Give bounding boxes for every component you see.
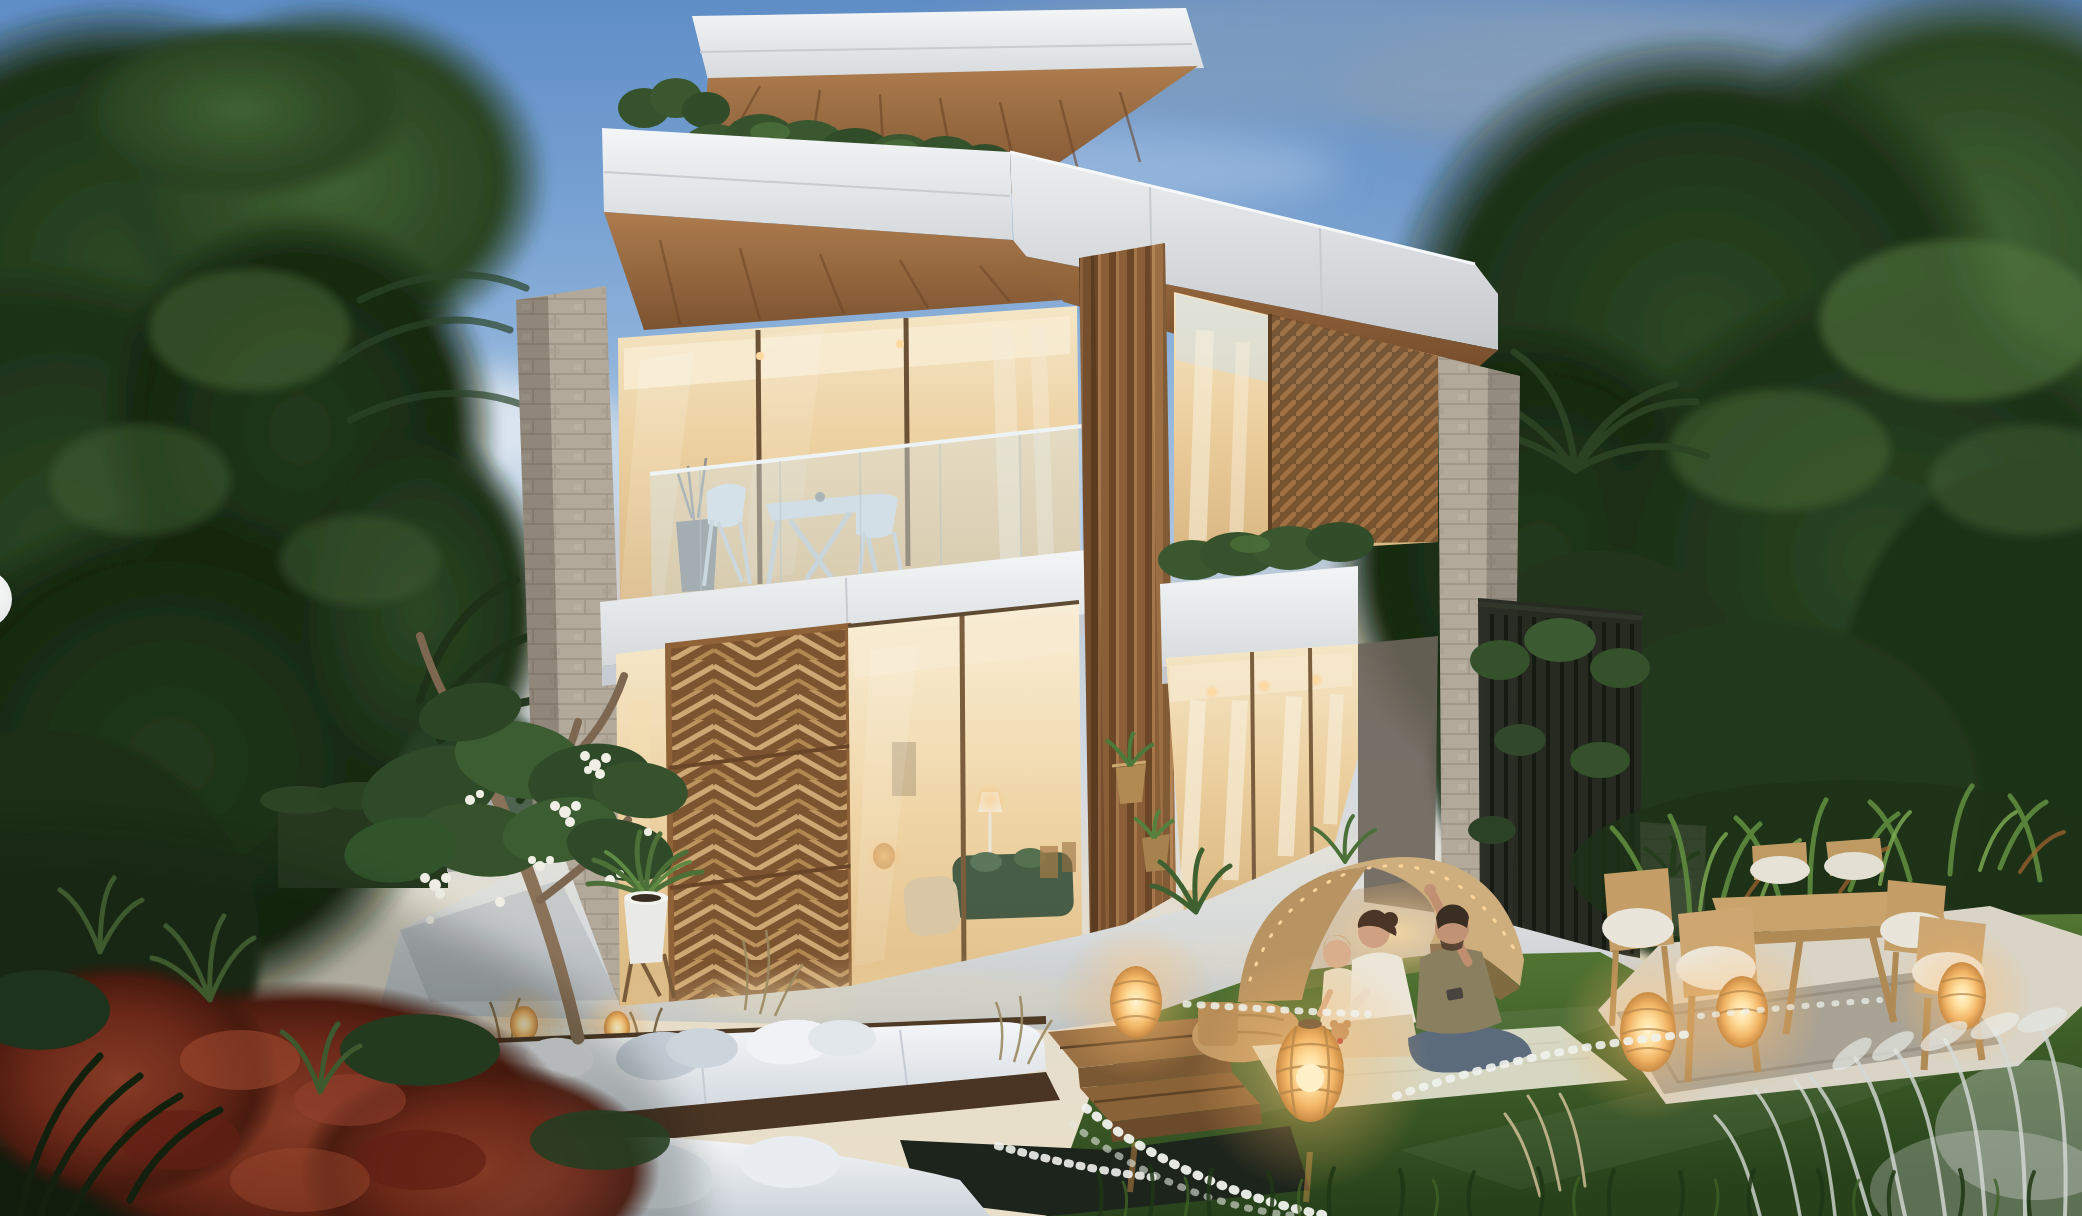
villa-dusk-render: Dusk exterior rendering of a modern two-… bbox=[0, 0, 2082, 1216]
pillow bbox=[740, 1136, 840, 1188]
pillow bbox=[808, 1020, 876, 1056]
chevron-timber-screen: Chevron timber privacy screen bbox=[668, 626, 852, 1006]
scene-canvas: Dusk exterior rendering of a modern two-… bbox=[0, 0, 2082, 1216]
living-room-glazing: Warm-lit living room behind glass slidin… bbox=[848, 602, 1082, 990]
rattan-lantern bbox=[1892, 926, 2032, 1066]
armchair bbox=[902, 874, 962, 937]
rattan-lantern bbox=[1190, 952, 1430, 1192]
rattan-lantern bbox=[1056, 922, 1216, 1082]
pillow bbox=[666, 1028, 738, 1068]
